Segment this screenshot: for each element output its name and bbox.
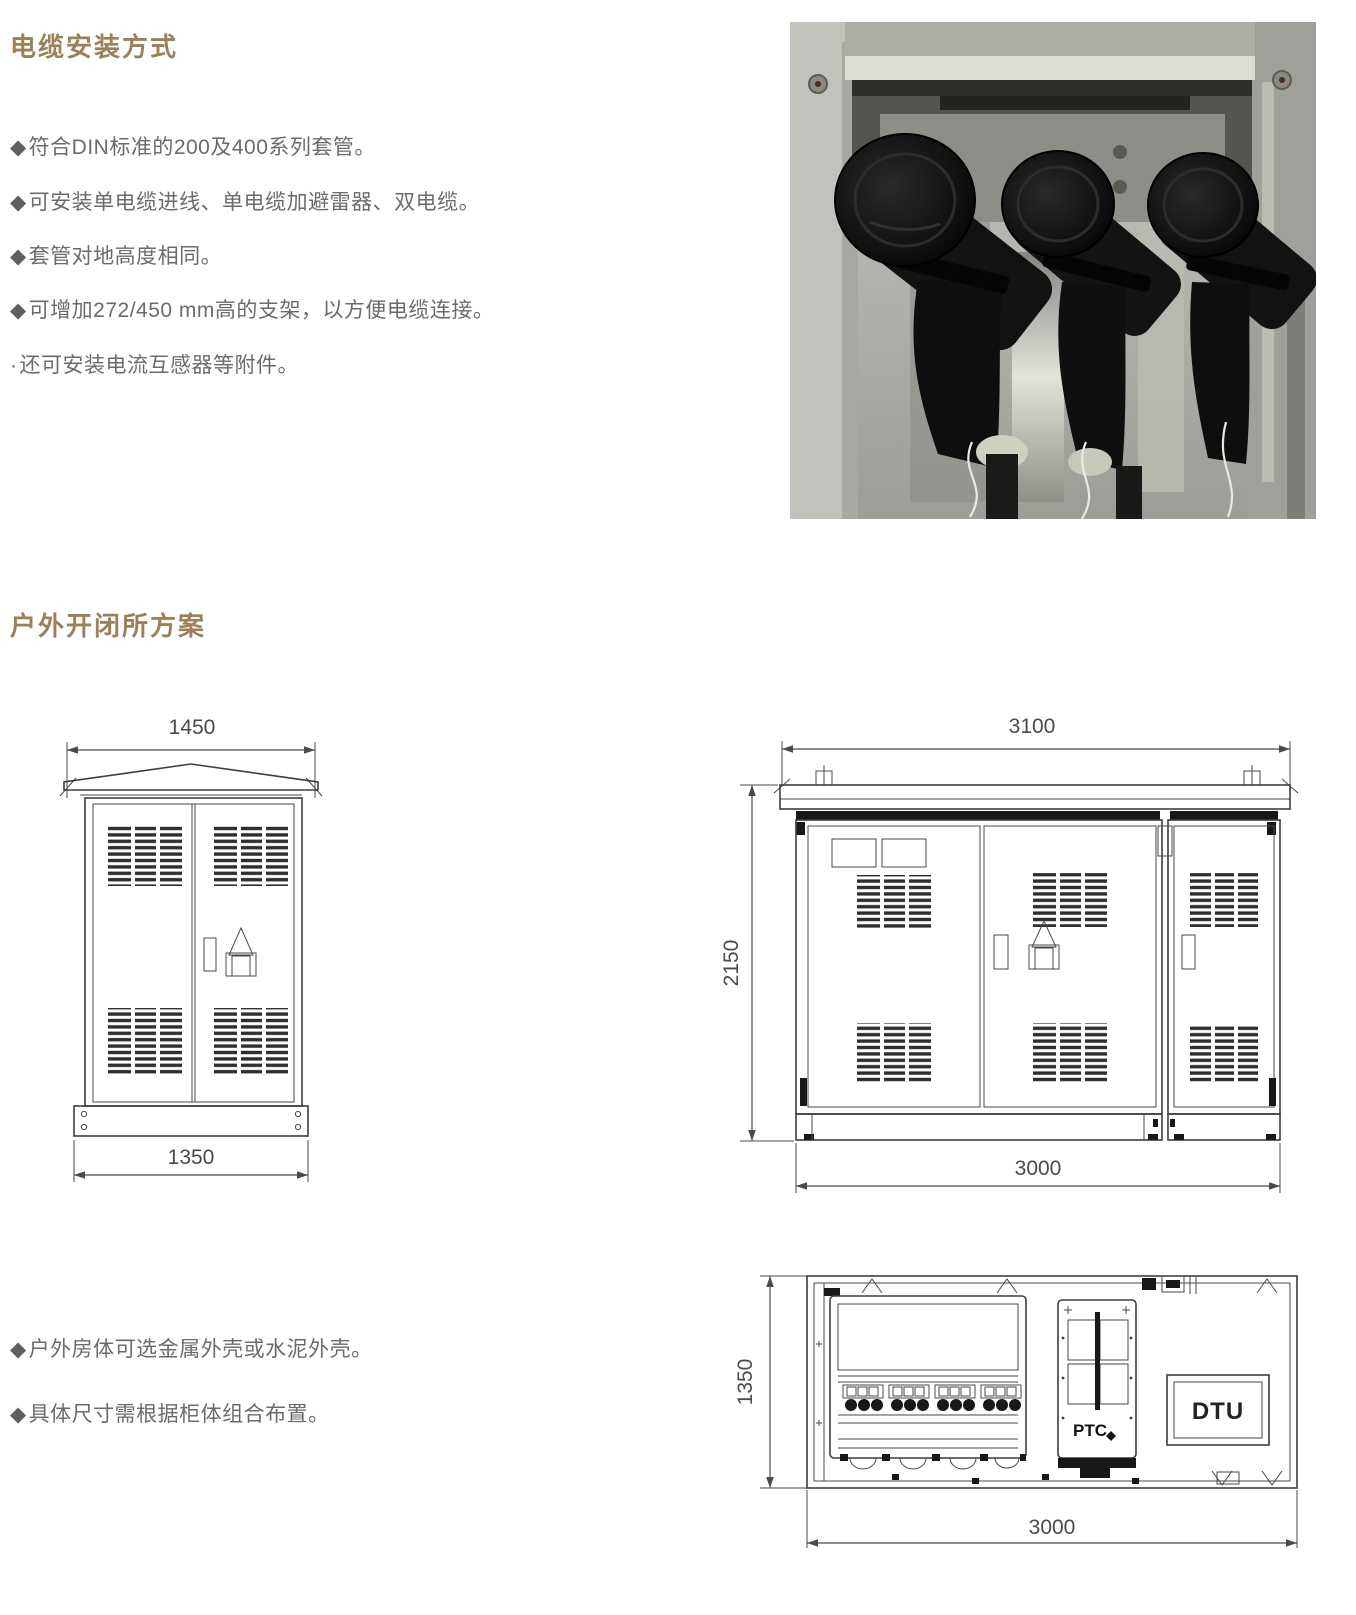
plan-view-drawing: 1350	[712, 1238, 1356, 1570]
dim-top-3100: 3100	[774, 715, 1298, 793]
bullet-text: 符合DIN标准的200及400系列套管。	[29, 136, 376, 159]
bullet-text: 户外房体可选金属外壳或水泥外壳。	[29, 1338, 373, 1361]
hinge-mark	[800, 1078, 807, 1106]
cabinet-base	[796, 1114, 1280, 1140]
small-cabinet-front-drawing: 1450	[52, 698, 387, 1198]
diamond-bullet-icon: ◆	[10, 136, 27, 159]
dim-bottom-3000: 3000	[796, 1143, 1280, 1193]
cable-bullet-1: ◆符合DIN标准的200及400系列套管。	[10, 131, 710, 161]
louver-vents	[857, 873, 1258, 1083]
dim-label: 1350	[168, 1146, 215, 1169]
hinge-mark	[1269, 1078, 1276, 1106]
dim-top-1450: 1450	[60, 716, 322, 798]
ptc-unit: PTC	[1058, 1300, 1136, 1478]
louver-vents	[108, 824, 288, 1074]
ptc-label: PTC	[1073, 1421, 1107, 1440]
frame-fittings	[824, 1276, 1239, 1484]
cable-bullet-5: ·还可安装电流互感器等附件。	[10, 349, 710, 379]
catalog-page: 电缆安装方式 ◆符合DIN标准的200及400系列套管。 ◆可安装单电缆进线、单…	[0, 0, 1356, 1615]
dim-label: 3000	[1015, 1157, 1062, 1180]
outdoor-bullet-2: ◆具体尺寸需根据柜体组合布置。	[10, 1398, 710, 1428]
cabinet-roof	[780, 785, 1290, 809]
cable-bullet-4: ◆可增加272/450 mm高的支架，以方便电缆连接。	[10, 294, 710, 324]
dim-left-1350: 1350	[734, 1276, 807, 1488]
dim-label: 3000	[1029, 1516, 1076, 1539]
bullet-text: 套管对地高度相同。	[29, 245, 223, 268]
lifting-lugs	[816, 765, 1260, 785]
door-handle	[1182, 935, 1195, 969]
diamond-bullet-icon: ◆	[10, 299, 27, 322]
dim-label: 3100	[1009, 715, 1056, 738]
padlock-symbol	[226, 928, 256, 976]
switchgear-unit	[830, 1296, 1026, 1469]
dot-bullet-icon: ·	[10, 354, 18, 377]
dim-bottom-1350: 1350	[74, 1140, 308, 1182]
dim-label: 1350	[734, 1359, 757, 1406]
ptc-base-bracket	[1058, 1458, 1136, 1478]
diamond-bullet-icon: ◆	[10, 245, 27, 268]
cabinet-roof	[64, 764, 318, 790]
dim-left-2150: 2150	[720, 785, 794, 1141]
bullet-text: 可增加272/450 mm高的支架，以方便电缆连接。	[29, 299, 495, 322]
cable-bushings	[845, 1399, 1021, 1411]
dim-label: 1450	[169, 716, 216, 739]
diamond-bullet-icon: ◆	[10, 1403, 27, 1426]
dtu-unit: DTU	[1167, 1375, 1269, 1445]
bullet-text: 可安装单电缆进线、单电缆加避雷器、双电缆。	[29, 191, 481, 214]
door-handle	[204, 938, 216, 971]
section-title-cable-installation: 电缆安装方式	[10, 27, 178, 64]
dtu-label: DTU	[1192, 1398, 1244, 1425]
ptc-diamond-icon	[1106, 1431, 1116, 1441]
diamond-bullet-icon: ◆	[10, 1338, 27, 1361]
bullet-text: 还可安装电流互感器等附件。	[20, 354, 300, 377]
roof-shadow-band	[796, 811, 1160, 820]
diamond-bullet-icon: ◆	[10, 191, 27, 214]
door-handle	[994, 935, 1008, 969]
section-title-outdoor-station: 户外开闭所方案	[10, 606, 206, 643]
cable-bullet-2: ◆可安装单电缆进线、单电缆加避雷器、双电缆。	[10, 186, 710, 216]
padlock-symbol	[1029, 921, 1059, 969]
outdoor-bullet-1: ◆户外房体可选金属外壳或水泥外壳。	[10, 1333, 710, 1363]
dim-label: 2150	[720, 940, 743, 987]
cabinet-base	[74, 1106, 308, 1136]
bullet-text: 具体尺寸需根据柜体组合布置。	[29, 1403, 330, 1426]
large-cabinet-front-drawing: 3100	[712, 693, 1356, 1208]
door-nameplates	[832, 839, 926, 867]
photo-illustration	[790, 22, 1316, 519]
cable-termination-photo	[790, 22, 1316, 519]
dim-bottom-3000: 3000	[807, 1490, 1297, 1548]
cable-bullet-3: ◆套管对地高度相同。	[10, 240, 710, 270]
